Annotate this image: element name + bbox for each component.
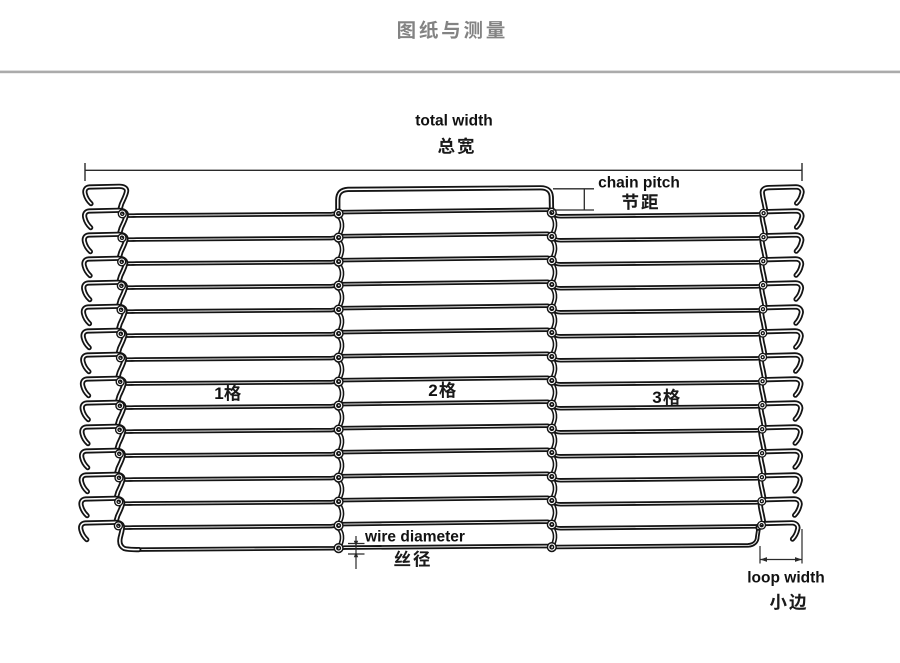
svg-text:total width: total width xyxy=(415,113,493,130)
svg-text:loop width: loop width xyxy=(747,570,824,587)
svg-text:1: 1 xyxy=(214,384,223,403)
svg-text:2: 2 xyxy=(428,381,437,400)
svg-text:wire diameter: wire diameter xyxy=(364,529,465,546)
svg-text:3: 3 xyxy=(652,388,661,407)
svg-text:chain pitch: chain pitch xyxy=(598,175,680,192)
